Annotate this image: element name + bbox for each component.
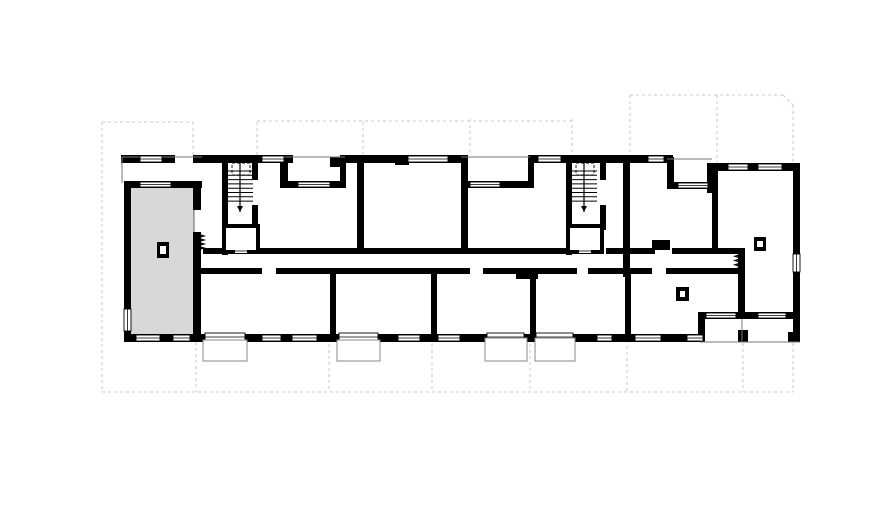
unit-layer [126,186,194,336]
wall [530,274,536,336]
column-core [757,241,763,247]
floor-plan [0,0,888,532]
wall [258,248,357,254]
wall [588,268,652,274]
wall [712,163,800,171]
balcony [337,340,380,361]
wall [667,157,674,189]
balcony [485,338,527,361]
wall [193,232,201,342]
floor-plan-canvas [0,0,888,532]
wall [738,330,748,342]
wall [252,155,258,180]
wall [330,274,336,336]
wall [330,157,346,167]
balcony [535,338,575,361]
unit-highlight[interactable] [126,186,194,336]
grid-line-diagonal [783,95,793,105]
column-core [160,246,166,254]
wall [431,274,437,336]
wall [666,268,744,274]
wall [193,185,201,210]
wall [195,268,262,274]
wall [276,268,470,274]
column-core [680,291,685,297]
elevator-shaft [568,226,602,252]
wall [793,163,800,342]
wall [357,155,364,254]
wall [203,248,222,254]
wall [606,248,623,254]
wall [395,157,409,165]
wall [364,248,461,254]
balcony [203,340,247,361]
wall [672,248,740,254]
wall [461,155,468,254]
elevator-shaft [224,226,258,252]
wall [630,248,655,254]
wall [623,157,630,277]
wall [788,332,800,342]
wall [528,155,534,188]
wall [712,168,718,252]
wall [516,270,538,279]
wall [625,274,631,336]
wall [652,240,670,250]
wall [468,248,566,254]
wall [600,155,606,180]
